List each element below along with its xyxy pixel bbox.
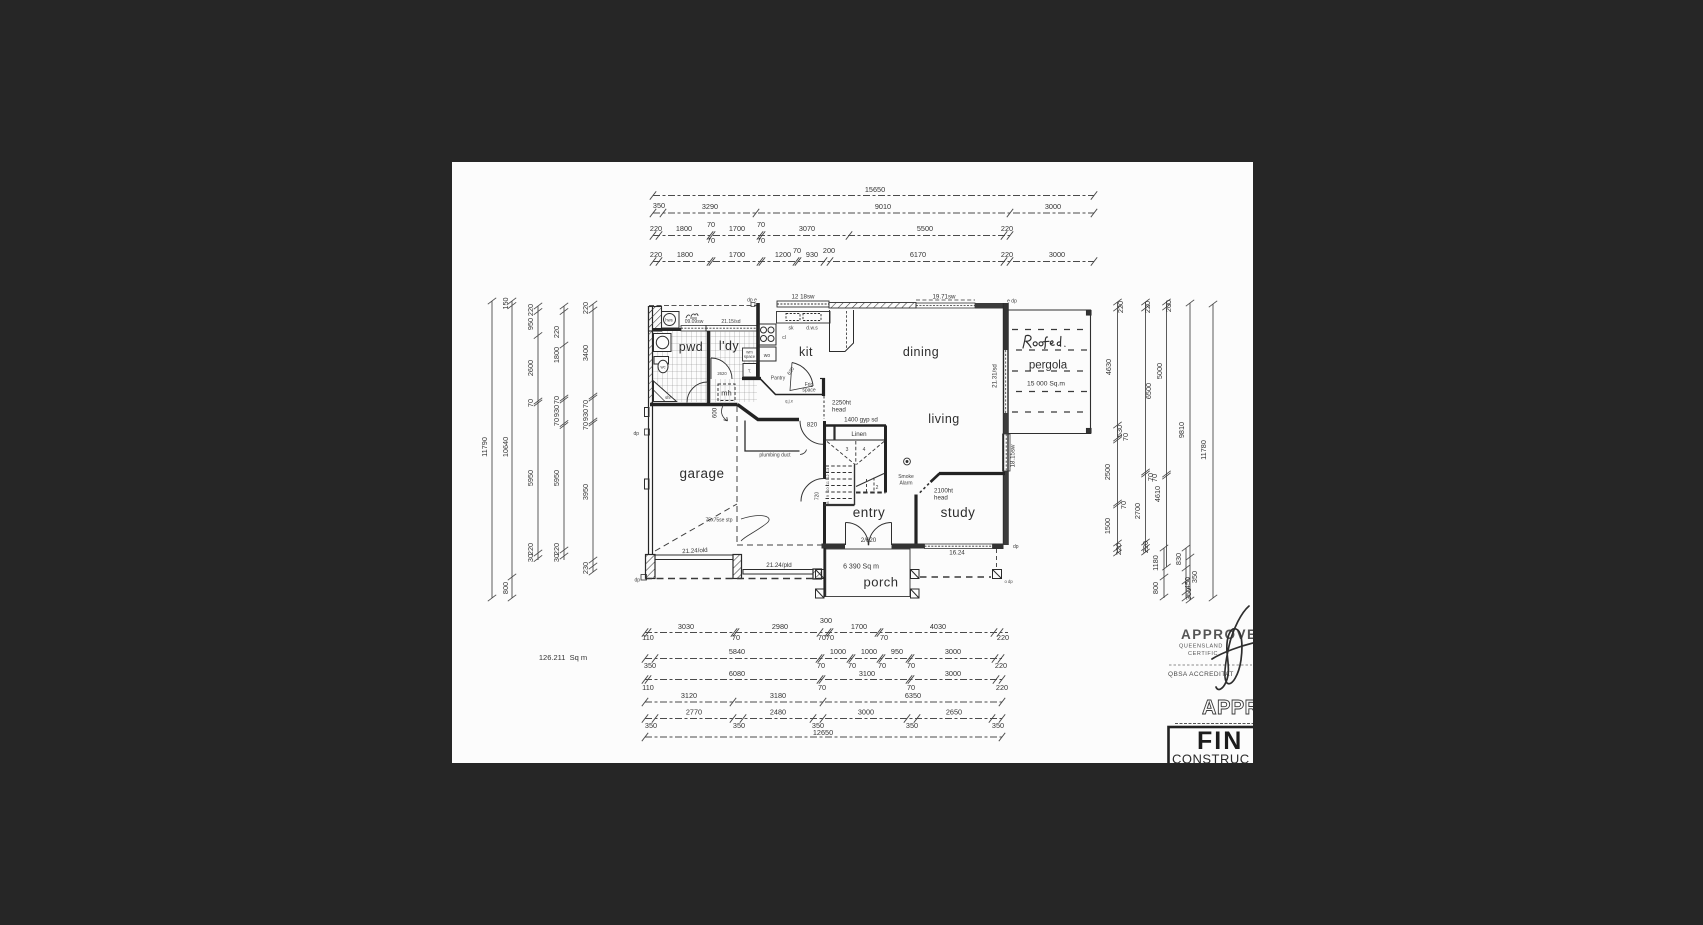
svg-text:350: 350 xyxy=(644,661,656,670)
svg-text:12650: 12650 xyxy=(813,728,833,737)
svg-text:820: 820 xyxy=(807,422,818,429)
svg-text:110: 110 xyxy=(642,633,654,642)
svg-text:space: space xyxy=(744,354,756,359)
svg-text:3400: 3400 xyxy=(581,345,590,361)
svg-text:3000: 3000 xyxy=(945,647,961,656)
svg-text:5950: 5950 xyxy=(526,470,535,486)
svg-text:wc: wc xyxy=(660,365,665,370)
svg-text:70: 70 xyxy=(707,236,715,245)
svg-text:220: 220 xyxy=(552,543,561,555)
svg-text:3000: 3000 xyxy=(1045,202,1061,211)
svg-text:dining: dining xyxy=(903,345,939,359)
svg-text:220: 220 xyxy=(650,224,662,233)
svg-text:830: 830 xyxy=(1174,553,1183,565)
svg-text:70: 70 xyxy=(817,661,825,670)
svg-text:9010: 9010 xyxy=(875,202,891,211)
svg-text:Alarm: Alarm xyxy=(899,481,912,487)
svg-text:plumbing duct: plumbing duct xyxy=(759,453,791,459)
svg-text:living: living xyxy=(928,412,960,426)
svg-text:220: 220 xyxy=(526,543,535,555)
svg-text:70: 70 xyxy=(757,220,765,229)
svg-text:6080: 6080 xyxy=(729,669,745,678)
svg-text:1000: 1000 xyxy=(830,647,846,656)
svg-text:Pantry: Pantry xyxy=(771,376,786,382)
svg-text:CERTIFIC: CERTIFIC xyxy=(1188,651,1218,657)
svg-text:study: study xyxy=(941,505,976,520)
svg-text:220: 220 xyxy=(1141,541,1150,553)
svg-text:220: 220 xyxy=(1001,250,1013,259)
svg-text:220: 220 xyxy=(995,661,1007,670)
svg-text:QBSA ACCREDITAT: QBSA ACCREDITAT xyxy=(1168,671,1234,678)
svg-text:220: 220 xyxy=(650,250,662,259)
svg-text:15650: 15650 xyxy=(865,185,885,194)
svg-text:220: 220 xyxy=(552,326,561,338)
svg-text:70: 70 xyxy=(1119,501,1128,509)
svg-text:70: 70 xyxy=(552,418,561,426)
svg-text:70: 70 xyxy=(732,633,740,642)
svg-text:11780: 11780 xyxy=(1199,440,1208,460)
svg-text:5000: 5000 xyxy=(1155,363,1164,379)
svg-text:1800: 1800 xyxy=(676,224,692,233)
svg-text:5840: 5840 xyxy=(729,647,745,656)
svg-text:1800: 1800 xyxy=(552,347,561,363)
svg-text:11790: 11790 xyxy=(480,437,489,457)
svg-text:200: 200 xyxy=(823,246,835,255)
svg-text:7070: 7070 xyxy=(818,633,834,642)
svg-text:220: 220 xyxy=(526,304,535,316)
svg-text:o dp: o dp xyxy=(1005,579,1014,584)
svg-text:1180: 1180 xyxy=(1151,555,1160,571)
svg-text:70: 70 xyxy=(907,661,915,670)
svg-text:1700: 1700 xyxy=(729,250,745,259)
svg-text:70: 70 xyxy=(757,236,765,245)
svg-text:2980: 2980 xyxy=(772,622,788,631)
svg-text:220: 220 xyxy=(997,633,1009,642)
svg-text:220: 220 xyxy=(1114,543,1123,555)
svg-text:30: 30 xyxy=(526,554,535,562)
svg-text:3000: 3000 xyxy=(858,708,874,717)
svg-text:6 390 Sq m: 6 390 Sq m xyxy=(843,564,879,571)
svg-text:head: head xyxy=(934,495,948,502)
svg-text:sk: sk xyxy=(789,326,795,332)
svg-text:2770: 2770 xyxy=(686,708,702,717)
svg-text:2100ht: 2100ht xyxy=(934,488,953,495)
svg-text:70: 70 xyxy=(793,246,801,255)
svg-text:pwd: pwd xyxy=(679,340,703,354)
svg-text:mh: mh xyxy=(721,389,731,398)
svg-text:200: 200 xyxy=(1164,300,1173,312)
svg-text:Linen: Linen xyxy=(851,431,867,438)
svg-text:dp: dp xyxy=(1013,544,1019,550)
svg-text:220: 220 xyxy=(1001,224,1013,233)
svg-text:2500: 2500 xyxy=(1103,464,1112,480)
svg-text:950: 950 xyxy=(526,318,535,330)
svg-text:300: 300 xyxy=(820,616,832,625)
svg-text:21.15/sd: 21.15/sd xyxy=(721,319,740,325)
svg-text:230: 230 xyxy=(581,562,590,574)
svg-text:70: 70 xyxy=(878,661,886,670)
svg-text:3000: 3000 xyxy=(945,669,961,678)
svg-text:21.24/pld: 21.24/pld xyxy=(766,562,792,569)
svg-text:350: 350 xyxy=(733,721,745,730)
svg-text:09.09sw: 09.09sw xyxy=(685,319,704,325)
svg-text:3030: 3030 xyxy=(678,622,694,631)
svg-text:space: space xyxy=(802,388,816,394)
svg-text:950: 950 xyxy=(891,647,903,656)
svg-text:cl: cl xyxy=(782,335,786,341)
svg-text:13: 13 xyxy=(826,468,830,472)
svg-text:16.24: 16.24 xyxy=(949,550,965,557)
svg-text:30: 30 xyxy=(552,554,561,562)
svg-text:12 18sw: 12 18sw xyxy=(791,294,815,301)
svg-text:Smoke: Smoke xyxy=(898,474,914,480)
svg-text:800: 800 xyxy=(1151,582,1160,594)
svg-text:q.j.x: q.j.x xyxy=(785,399,794,404)
svg-text:12: 12 xyxy=(826,474,830,478)
svg-text:6170: 6170 xyxy=(910,250,926,259)
svg-text:3180: 3180 xyxy=(770,691,786,700)
svg-text:350: 350 xyxy=(906,721,918,730)
svg-text:3120: 3120 xyxy=(681,691,697,700)
svg-text:1400 gyp sd: 1400 gyp sd xyxy=(844,417,878,424)
svg-text:350: 350 xyxy=(1190,571,1199,583)
svg-text:126.211 Sq m: 126.211 Sq m xyxy=(539,653,587,662)
svg-text:9810: 9810 xyxy=(1177,422,1186,438)
svg-text:2250ht: 2250ht xyxy=(832,400,851,407)
svg-text:3100: 3100 xyxy=(859,669,875,678)
svg-text:1700: 1700 xyxy=(729,224,745,233)
svg-text:3000: 3000 xyxy=(1049,250,1065,259)
svg-text:220: 220 xyxy=(581,302,590,314)
svg-text:QUEENSLAND: QUEENSLAND xyxy=(1179,644,1223,650)
svg-text:70: 70 xyxy=(707,220,715,229)
svg-text:220: 220 xyxy=(1116,301,1125,313)
svg-text:1200: 1200 xyxy=(775,250,791,259)
svg-text:4: 4 xyxy=(863,447,866,453)
svg-text:6350: 6350 xyxy=(905,691,921,700)
svg-text:T.: T. xyxy=(748,369,751,374)
svg-text:garage: garage xyxy=(679,466,724,481)
svg-text:350: 350 xyxy=(645,721,657,730)
svg-text:70: 70 xyxy=(880,633,888,642)
svg-text:720: 720 xyxy=(815,492,821,501)
svg-text:600: 600 xyxy=(712,407,719,418)
svg-text:70: 70 xyxy=(848,661,856,670)
svg-text:70: 70 xyxy=(552,396,561,404)
svg-text:hws: hws xyxy=(665,318,672,323)
svg-text:4610: 4610 xyxy=(1153,486,1162,502)
svg-text:9: 9 xyxy=(826,495,830,497)
svg-text:4630: 4630 xyxy=(1104,359,1113,375)
svg-text:5950: 5950 xyxy=(552,470,561,486)
svg-text:3290: 3290 xyxy=(702,202,718,211)
svg-text:pergola: pergola xyxy=(1029,360,1068,372)
svg-text:2/620: 2/620 xyxy=(861,537,877,544)
svg-text:1500: 1500 xyxy=(1103,518,1112,534)
svg-text:l'dy: l'dy xyxy=(719,339,740,353)
svg-text:dp: dp xyxy=(633,431,639,437)
svg-text:930: 930 xyxy=(806,250,818,259)
svg-text:6500: 6500 xyxy=(1144,383,1153,399)
svg-text:70: 70 xyxy=(818,683,826,692)
svg-text:8: 8 xyxy=(826,501,830,503)
svg-text:220: 220 xyxy=(1143,301,1152,313)
svg-text:shr: shr xyxy=(665,395,671,400)
svg-text:11: 11 xyxy=(826,481,830,485)
svg-text:150: 150 xyxy=(501,297,510,309)
svg-text:porch: porch xyxy=(863,575,898,590)
svg-text:3: 3 xyxy=(846,447,849,453)
svg-text:10640: 10640 xyxy=(501,437,510,457)
svg-text:350: 350 xyxy=(653,201,665,210)
svg-text:350: 350 xyxy=(992,721,1004,730)
svg-text:3950: 3950 xyxy=(581,484,590,500)
svg-text:1800: 1800 xyxy=(677,250,693,259)
svg-text:head: head xyxy=(832,407,846,414)
svg-text:18.15sw: 18.15sw xyxy=(1010,444,1017,468)
svg-text:800: 800 xyxy=(501,582,510,594)
svg-text:70: 70 xyxy=(581,400,590,408)
svg-text:kit: kit xyxy=(799,345,813,359)
svg-text:19.71sw: 19.71sw xyxy=(932,294,956,301)
svg-text:2620: 2620 xyxy=(717,371,727,376)
svg-text:2: 2 xyxy=(876,485,879,491)
svg-text:350: 350 xyxy=(1184,588,1193,600)
svg-text:entry: entry xyxy=(853,505,886,520)
svg-text:5500: 5500 xyxy=(917,224,933,233)
svg-text:3070: 3070 xyxy=(799,224,815,233)
svg-text:70: 70 xyxy=(581,422,590,430)
svg-text:1700: 1700 xyxy=(851,622,867,631)
svg-text:15 000 Sq.m: 15 000 Sq.m xyxy=(1027,381,1065,388)
svg-text:220: 220 xyxy=(996,683,1008,692)
svg-text:2650: 2650 xyxy=(946,708,962,717)
svg-text:21.24/old: 21.24/old xyxy=(682,547,708,555)
svg-text:110: 110 xyxy=(642,683,654,692)
svg-text:70: 70 xyxy=(526,399,535,407)
svg-text:70: 70 xyxy=(1150,474,1159,482)
svg-text:10: 10 xyxy=(826,487,830,491)
svg-text:wo: wo xyxy=(764,353,771,359)
svg-text:75x75se stp: 75x75se stp xyxy=(706,518,733,524)
svg-text:2700: 2700 xyxy=(1133,503,1142,519)
svg-text:21.31/sd: 21.31/sd xyxy=(992,364,999,388)
svg-text:2600: 2600 xyxy=(526,360,535,376)
svg-text:4030: 4030 xyxy=(930,622,946,631)
svg-text:70: 70 xyxy=(1121,433,1130,441)
svg-text:930: 930 xyxy=(581,409,590,421)
svg-text:1000: 1000 xyxy=(861,647,877,656)
svg-text:2480: 2480 xyxy=(770,708,786,717)
svg-text:d.w.s: d.w.s xyxy=(806,326,818,332)
svg-text:930: 930 xyxy=(552,405,561,417)
svg-text:dp: dp xyxy=(634,578,640,584)
